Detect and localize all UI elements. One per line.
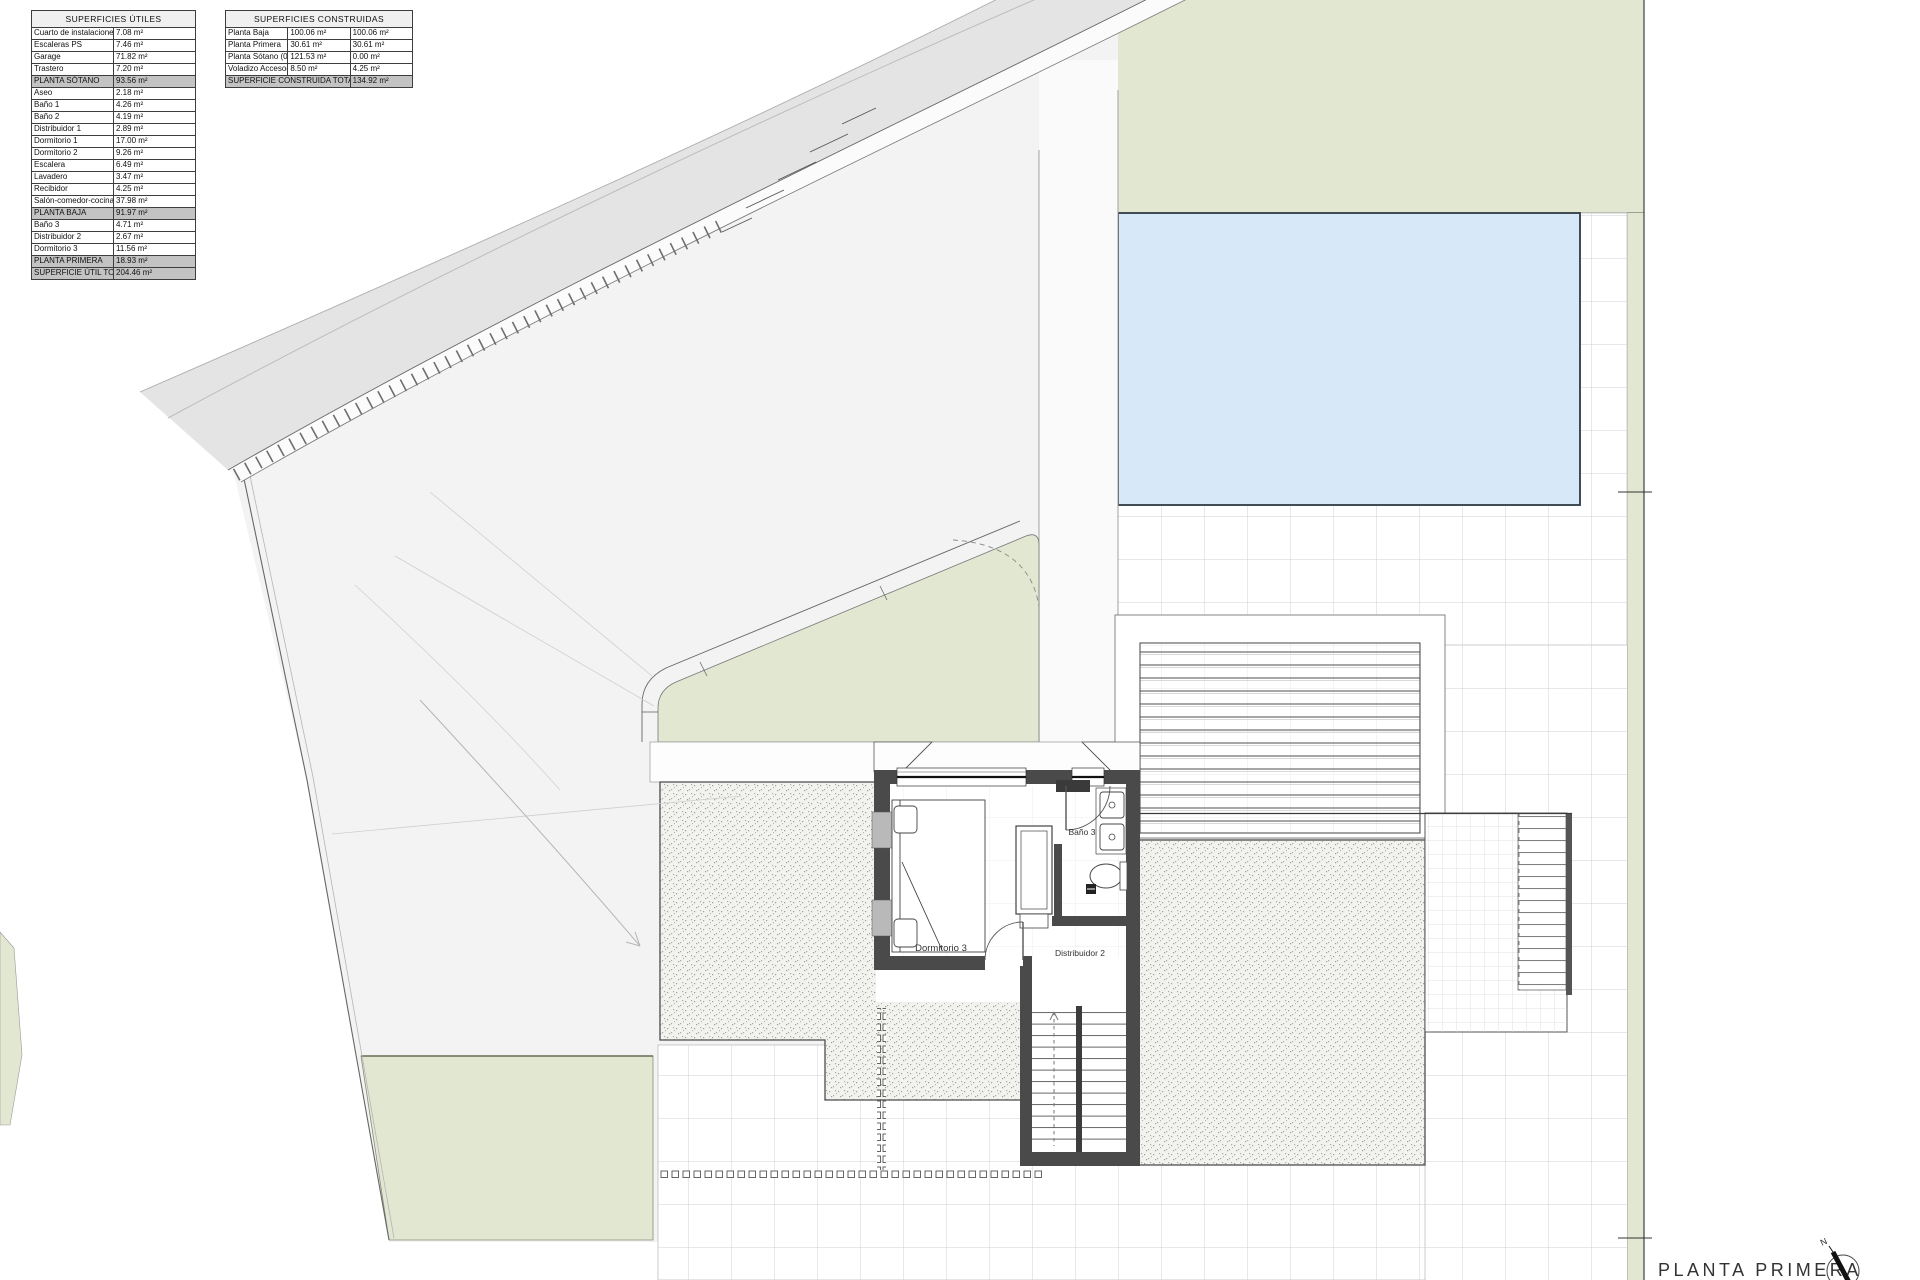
- room-label-dormitorio3: Dormitorio 3: [915, 943, 967, 954]
- table-row: Baño 14.26 m²: [32, 100, 196, 112]
- table-row: Baño 24.19 m²: [32, 112, 196, 124]
- garden-top-right: [1118, 0, 1644, 213]
- table-row: Cuarto de instalaciones7.08 m²: [32, 28, 196, 40]
- terrace-right: [1138, 840, 1425, 1165]
- sheet-title: PLANTA PRIMERA: [1658, 1260, 1862, 1280]
- table-row: Aseo2.18 m²: [32, 88, 196, 100]
- table-row: Escaleras PS7.46 m²: [32, 40, 196, 52]
- table-total-row: SUPERFICIE CONSTRUIDA TOTAL134.92 m²: [226, 76, 413, 88]
- table-row: Planta Sótano (0%)121.53 m²0.00 m²: [226, 52, 413, 64]
- table-row: PLANTA BAJA91.97 m²: [32, 208, 196, 220]
- wardrobe: [1016, 826, 1052, 928]
- table-row: Salón-comedor-cocina37.98 m²: [32, 196, 196, 208]
- table-row: Baño 34.71 m²: [32, 220, 196, 232]
- construidas-table-title: SUPERFICIES CONSTRUIDAS: [226, 11, 413, 28]
- room-label-distribuidor2: Distribuidor 2: [1055, 948, 1105, 958]
- table-row: PLANTA PRIMERA18.93 m²: [32, 256, 196, 268]
- garden-sliver-left: [0, 932, 22, 1125]
- table-row: Dormitorio 117.00 m²: [32, 136, 196, 148]
- table-row: Dormitorio 29.26 m²: [32, 148, 196, 160]
- table-row: Planta Primera30.61 m²30.61 m²: [226, 40, 413, 52]
- table-row: Garage71.82 m²: [32, 52, 196, 64]
- table-row: Distribuidor 12.89 m²: [32, 124, 196, 136]
- north-label: N: [1819, 1236, 1829, 1248]
- utiles-table-title: SUPERFICIES ÚTILES: [32, 11, 196, 28]
- table-row: Lavadero3.47 m²: [32, 172, 196, 184]
- table-row: Trastero7.20 m²: [32, 64, 196, 76]
- table-row: Dormitorio 311.56 m²: [32, 244, 196, 256]
- room-label-bano3: Baño 3: [1069, 827, 1096, 837]
- pergola: [1115, 615, 1445, 838]
- garden-strip-right: [1627, 213, 1644, 1280]
- table-row: Distribuidor 22.67 m²: [32, 232, 196, 244]
- superficies-construidas-body: Planta Baja100.06 m²100.06 m²Planta Prim…: [226, 28, 413, 88]
- interior-stairs: [1032, 1002, 1126, 1152]
- superficies-construidas-table: SUPERFICIES CONSTRUIDAS Planta Baja100.0…: [225, 10, 413, 88]
- table-row: Escalera6.49 m²: [32, 160, 196, 172]
- superficies-utiles-body: Cuarto de instalaciones7.08 m²Escaleras …: [32, 28, 196, 280]
- table-row: Planta Baja100.06 m²100.06 m²: [226, 28, 413, 40]
- walkway: [1039, 60, 1118, 772]
- table-row: SUPERFICIE ÚTIL TOTAL204.46 m²: [32, 268, 196, 280]
- floor-plan-sheet: { "tables": { "utiles": { "title": "SUPE…: [0, 0, 1920, 1280]
- site-plan: Dormitorio 3 Baño 3 Distribuidor 2 PLANT…: [0, 0, 1920, 1280]
- table-row: PLANTA SÓTANO93.56 m²: [32, 76, 196, 88]
- swimming-pool: [1118, 213, 1580, 505]
- superficies-utiles-table: SUPERFICIES ÚTILES Cuarto de instalacion…: [31, 10, 196, 280]
- table-row: Recibidor4.25 m²: [32, 184, 196, 196]
- bed: [892, 800, 985, 952]
- table-row: Voladizo Acceso(50%)8.50 m²4.25 m²: [226, 64, 413, 76]
